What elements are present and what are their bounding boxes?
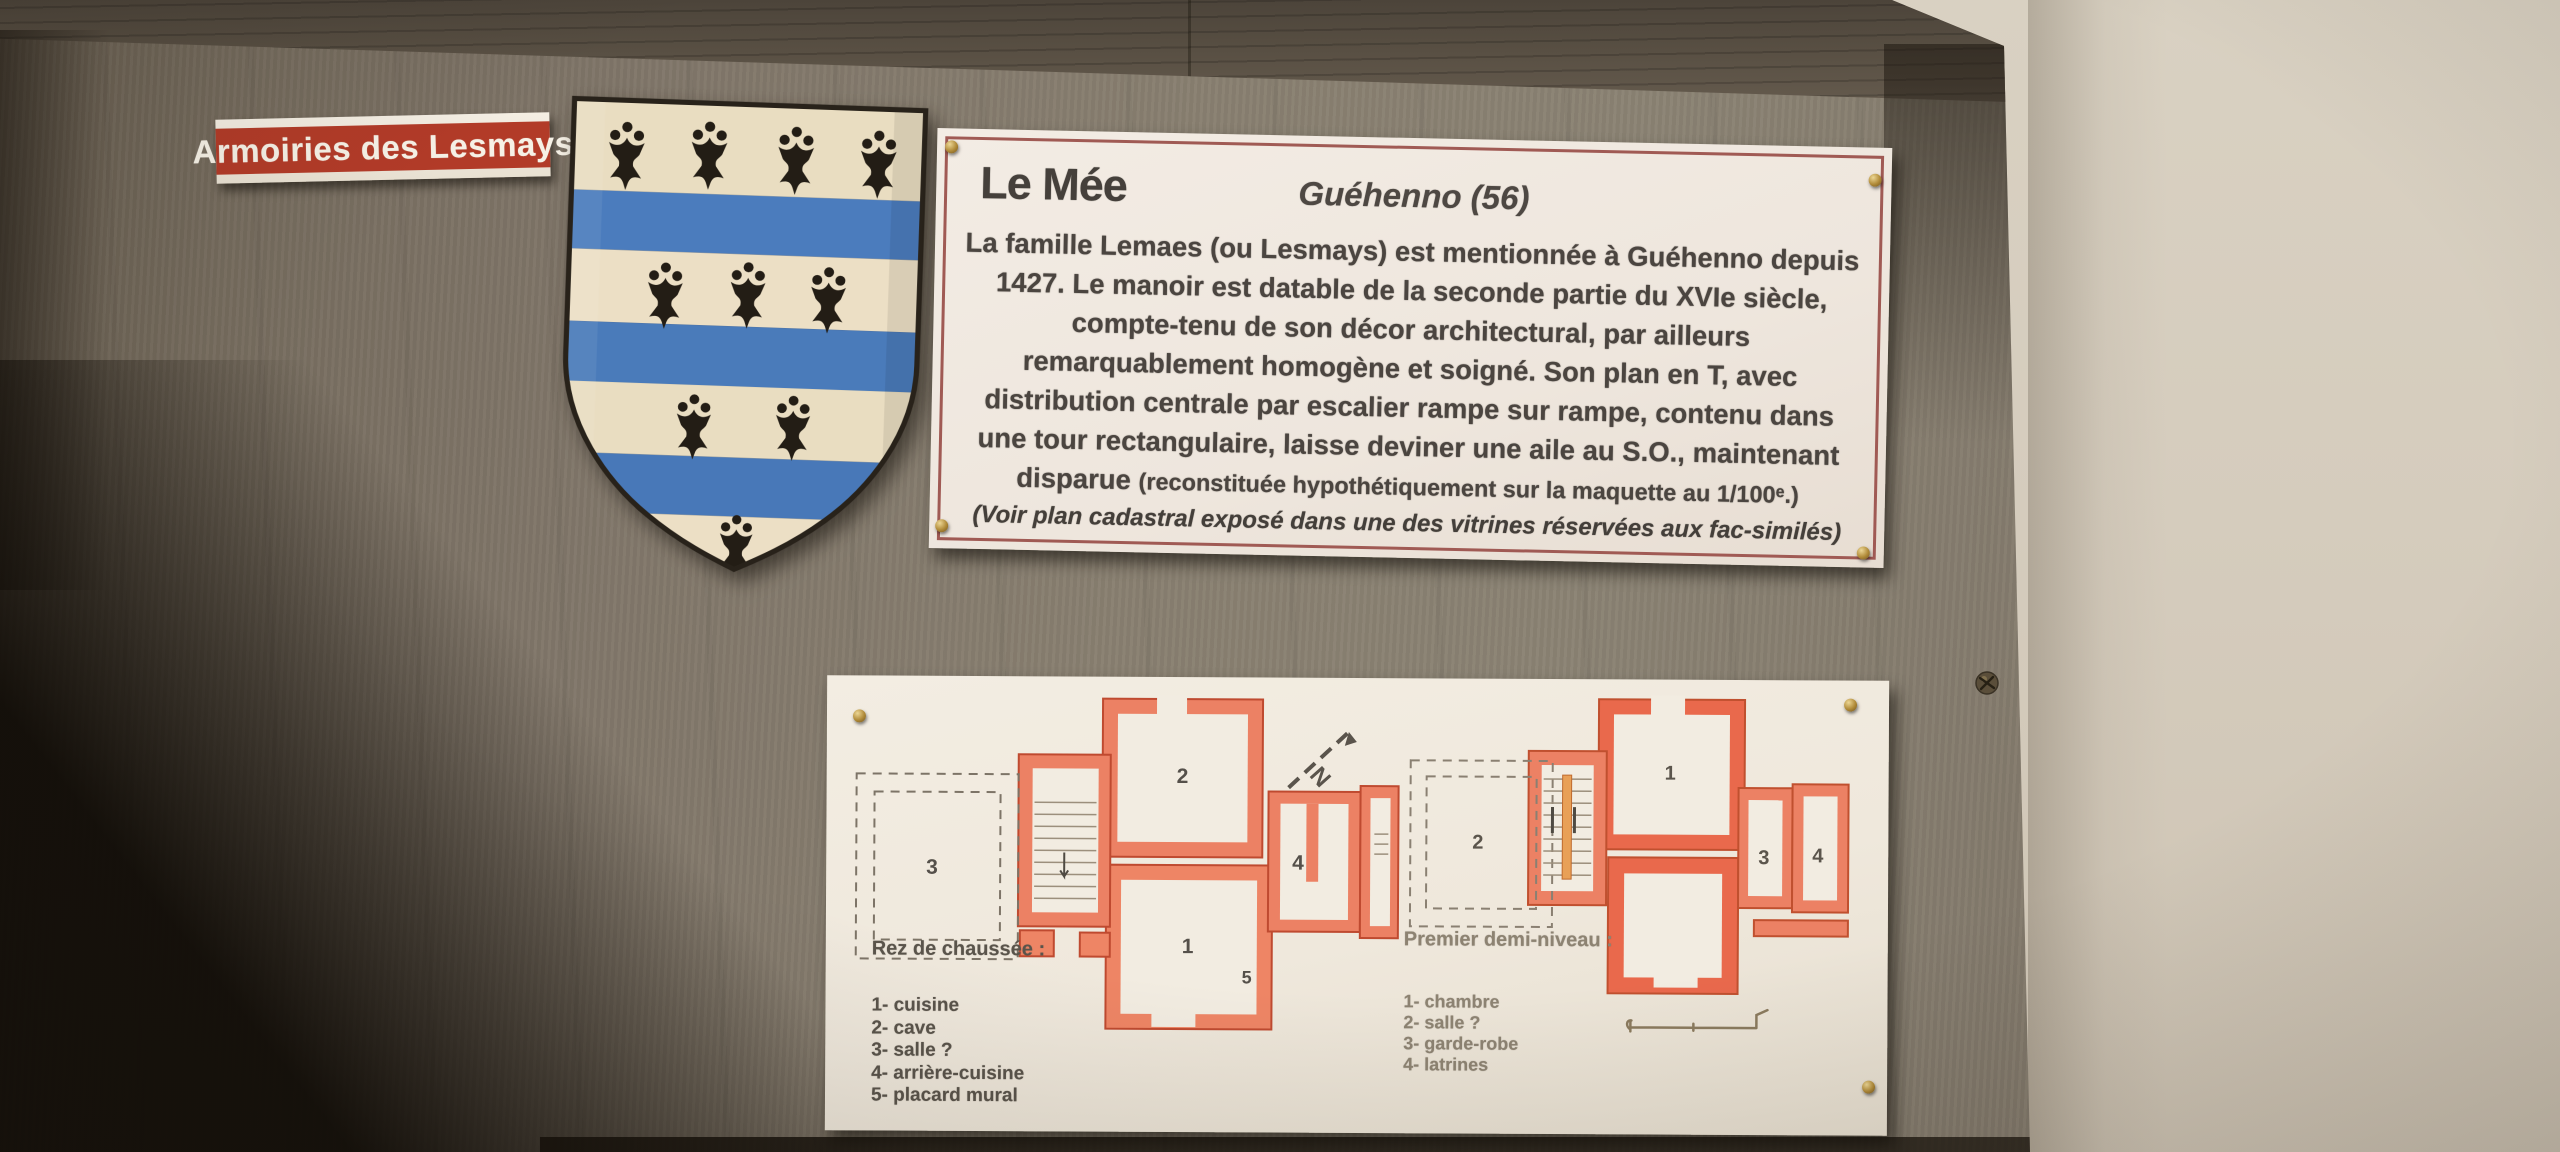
plaque-subtitle: Guéhenno (56) (1298, 175, 1680, 221)
label-text: Armoiries des Lesmays (192, 125, 574, 172)
push-pin-icon (1862, 1081, 1875, 1094)
plaque-content: Le Mée Guéhenno (56) La famille Lemaes (… (951, 143, 1870, 554)
floorplan-sheet: N 2 3 1 4 5 (825, 675, 1889, 1136)
room-number: 1 (1182, 935, 1194, 958)
legend-items: 1- cuisine 2- cave 3- salle ? 4- arrière… (871, 994, 1045, 1107)
legend-items: 1- chambre 2- salle ? 3- garde-robe 4- l… (1403, 991, 1612, 1076)
wall-corner-shading (2028, 0, 2168, 1152)
label-plate: Armoiries des Lesmays (215, 112, 550, 184)
room-number: 2 (1177, 765, 1189, 788)
legend-item: 3- garde-robe (1403, 1033, 1612, 1055)
label-red-panel: Armoiries des Lesmays (216, 121, 551, 175)
legend-item: 4- latrines (1403, 1054, 1612, 1076)
info-plaque: Le Mée Guéhenno (56) La famille Lemaes (… (929, 128, 1893, 568)
legend-item: 3- salle ? (871, 1039, 1045, 1062)
ground-floor-legend: Rez de chaussée : 1- cuisine 2- cave 3- … (871, 937, 1045, 1107)
plaque-title-row: Le Mée Guéhenno (56) (980, 157, 1852, 227)
first-level-legend: Premier demi-niveau : 1- chambre 2- sall… (1403, 928, 1613, 1076)
room-number: 4 (1292, 852, 1304, 875)
room-number: 3 (1758, 847, 1769, 869)
legend-heading: Rez de chaussée : (872, 937, 1046, 961)
disparue-word: disparue (1016, 462, 1131, 495)
room-number: 5 (1242, 967, 1252, 987)
legend-item: 2- salle ? (1403, 1012, 1612, 1034)
screw-icon (1974, 670, 2000, 696)
beam-shadow (1884, 44, 2014, 444)
legend-item: 5- placard mural (871, 1084, 1045, 1107)
legend-heading: Premier demi-niveau : (1404, 928, 1613, 952)
legend-item: 2- cave (871, 1017, 1045, 1040)
legend-item: 4- arrière-cuisine (871, 1062, 1045, 1085)
museum-display-photo: Armoiries des Lesmays (0, 0, 2560, 1152)
scale-bar-icon (1620, 1001, 1770, 1042)
north-arrow-icon: N (1289, 732, 1357, 793)
room-number: 4 (1812, 845, 1824, 867)
maquette-note: (reconstituée hypothétiquement sur la ma… (1138, 468, 1799, 508)
board-bottom-edge (540, 1137, 2032, 1152)
push-pin-icon (853, 709, 866, 722)
plaque-title: Le Mée (980, 157, 1128, 212)
push-pin-icon (1844, 699, 1857, 712)
stair-newel (1562, 775, 1572, 879)
coat-of-arms-shield (548, 90, 937, 589)
legend-item: 1- cuisine (871, 994, 1045, 1017)
plaque-body-text: La famille Lemaes (ou Lesmays) est menti… (951, 222, 1868, 550)
legend-item: 1- chambre (1403, 991, 1612, 1013)
room-number: 3 (926, 856, 938, 879)
room-number: 1 (1665, 763, 1676, 785)
shield-field (548, 90, 937, 588)
room-number: 2 (1472, 832, 1483, 854)
